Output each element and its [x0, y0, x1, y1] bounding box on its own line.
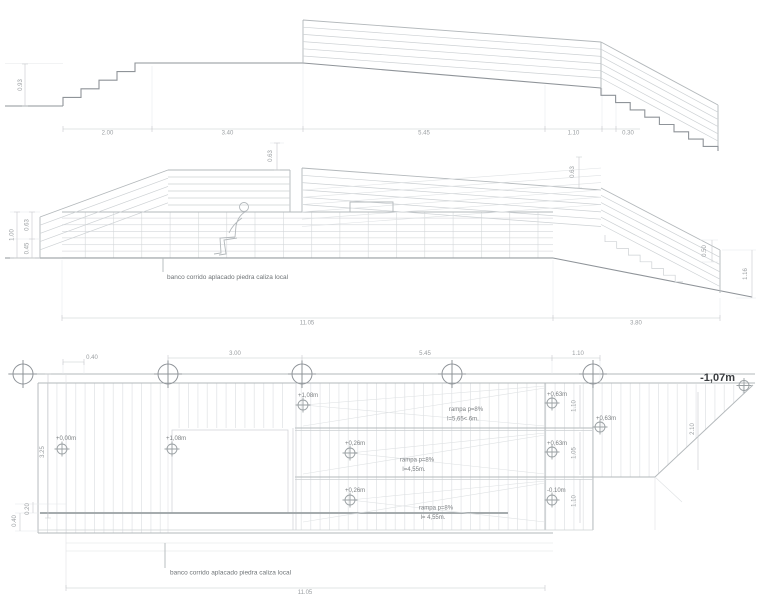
level-label: -0.10m	[547, 488, 566, 494]
dim-label: 11.05	[300, 321, 315, 327]
level-label: +0,26m	[345, 441, 365, 447]
dim-label: 0.20	[25, 503, 31, 515]
dim-label: 1.05	[572, 447, 578, 459]
mid-right-stair-band	[601, 188, 720, 293]
dim-label: 1.10	[568, 131, 580, 137]
mid-peak-band	[168, 170, 290, 212]
plan-hatch-left	[38, 383, 168, 533]
dim-label: 0.50	[702, 245, 708, 257]
ground-line	[5, 258, 752, 297]
level-label: +0,63m	[596, 416, 616, 422]
plan-platform	[172, 430, 288, 513]
ramp-label: rampa p=8%	[449, 407, 484, 413]
plan-view: +0,00m +1,08m +1,08m +0,26m +0,26m +0,63…	[8, 351, 755, 596]
top-section-right-stair	[601, 88, 718, 151]
top-section-dimensions: 0.93 2.00 3.40 5.45 1.10 0.30	[18, 64, 640, 137]
mid-section-note: banco corrido aplacado piedra caliza loc…	[167, 274, 289, 281]
dim-label: 11.05	[298, 590, 313, 596]
architectural-drawing-sheet: 0.93 2.00 3.40 5.45 1.10 0.30	[0, 0, 761, 600]
dim-label: 0.40	[86, 355, 98, 361]
level-label: +1,08m	[298, 393, 318, 399]
dim-label: 3.25	[40, 446, 46, 458]
dim-label: 5.45	[418, 131, 430, 137]
level-label: +1,08m	[166, 436, 186, 442]
level-label: +0,26m	[345, 488, 365, 494]
dim-label: 1.10	[572, 400, 578, 412]
top-section-left-stair	[63, 63, 152, 106]
dim-label: 0.40	[12, 515, 18, 527]
level-label: +0,00m	[56, 436, 76, 442]
top-section: 0.93 2.00 3.40 5.45 1.10 0.30	[5, 20, 718, 151]
dim-label: 1.10	[572, 495, 578, 507]
dim-label: 0.63	[570, 166, 576, 178]
dim-label: 0.63	[25, 219, 31, 231]
plan-hatch-upper-mid	[172, 383, 288, 428]
ramp-label: l=5,65< 6m.	[447, 417, 479, 423]
dim-label: 1.00	[10, 229, 16, 241]
dim-label: 3.40	[222, 131, 234, 137]
dim-label: 1.16	[743, 268, 749, 280]
top-section-parapet-band	[303, 20, 718, 151]
dim-label: 3.00	[229, 351, 241, 357]
dim-label: 5.45	[419, 351, 431, 357]
street-level-label: -1,07m	[700, 372, 735, 384]
plan-hatch-right	[593, 383, 753, 477]
ramp-label: rampa p=8%	[419, 506, 454, 512]
dim-label: 2.10	[690, 423, 696, 435]
dim-label: 2.00	[102, 131, 114, 137]
ramp-label: l= 4,55m.	[421, 515, 446, 521]
dim-label: 1.10	[572, 351, 584, 357]
dim-label: 0.30	[622, 131, 634, 137]
dim-label: 0.45	[25, 242, 31, 254]
axis-marker	[9, 360, 37, 388]
dim-label: 0.93	[18, 79, 24, 91]
mid-section: banco corrido aplacado piedra caliza loc…	[5, 143, 756, 327]
dim-label: 3.80	[630, 321, 642, 327]
ramp-label: l=4,55m.	[402, 467, 426, 473]
level-label: +0,63m	[547, 441, 567, 447]
plan-note: banco corrido aplacado piedra caliza loc…	[170, 570, 292, 577]
ramp-label: rampa p=8%	[400, 458, 435, 464]
dim-label: 0.63	[268, 150, 274, 162]
level-label: +0,63m	[547, 392, 567, 398]
drawing-svg: 0.93 2.00 3.40 5.45 1.10 0.30	[0, 0, 761, 600]
